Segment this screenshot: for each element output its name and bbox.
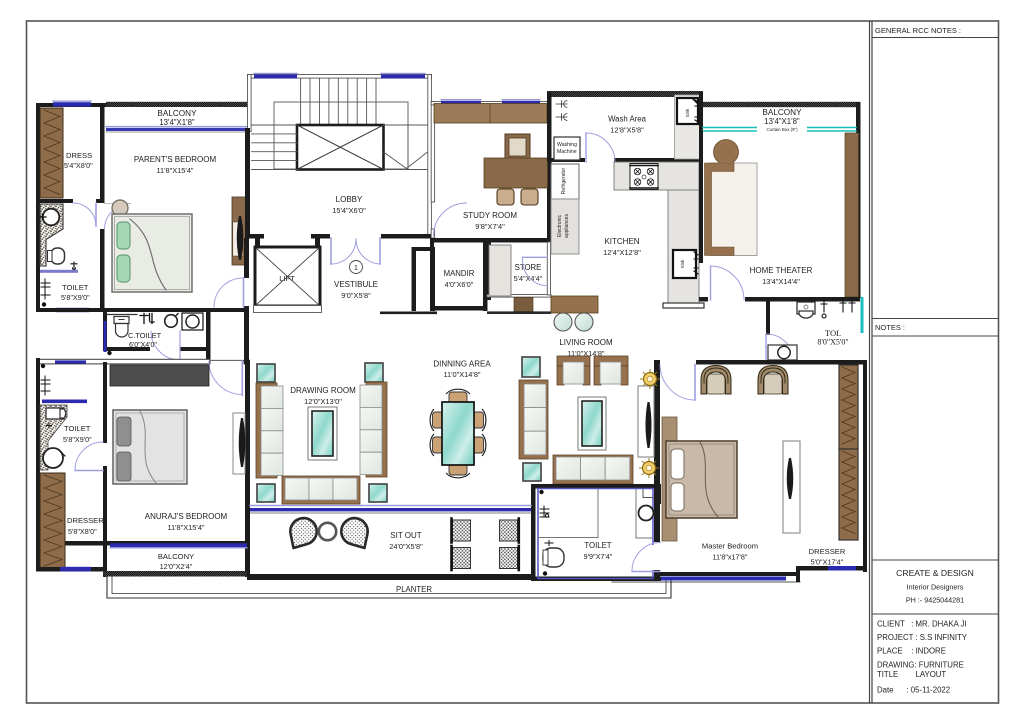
svg-text:VESTIBULE: VESTIBULE xyxy=(334,280,378,289)
svg-text:CREATE & DESIGN: CREATE & DESIGN xyxy=(896,568,974,578)
svg-text:HOME THEATER: HOME THEATER xyxy=(750,266,813,275)
svg-text:DRESS: DRESS xyxy=(66,151,92,160)
svg-text:TOILET: TOILET xyxy=(62,283,89,292)
svg-text:5'4"X8'0": 5'4"X8'0" xyxy=(64,161,93,170)
svg-text:Sink: Sink xyxy=(685,108,690,118)
svg-text:Machine: Machine xyxy=(557,149,577,155)
svg-text:PROJECT : S.S INFINITY: PROJECT : S.S INFINITY xyxy=(877,633,968,642)
svg-text:STORE: STORE xyxy=(515,263,542,272)
svg-text:Washing: Washing xyxy=(557,142,577,148)
svg-text:Electronic: Electronic xyxy=(557,215,563,237)
svg-text:11'8"X15'4": 11'8"X15'4" xyxy=(167,523,204,532)
svg-text:TITLE LAYOUT: TITLE LAYOUT xyxy=(877,670,946,679)
svg-text:15'4"X6'0": 15'4"X6'0" xyxy=(332,206,366,215)
svg-text:Wash Area: Wash Area xyxy=(608,115,647,124)
svg-text:11'0"X14'8": 11'0"X14'8" xyxy=(443,370,480,379)
svg-text:5'8"X9'0": 5'8"X9'0" xyxy=(63,435,92,444)
svg-text:LIFT: LIFT xyxy=(279,274,295,283)
svg-text:LIVING ROOM: LIVING ROOM xyxy=(559,338,613,347)
svg-text:BALCONY: BALCONY xyxy=(157,109,197,118)
svg-text:PLANTER: PLANTER xyxy=(396,585,432,594)
svg-text:ANURAJ'S BEDROOM: ANURAJ'S BEDROOM xyxy=(145,512,228,521)
svg-text:GENERAL RCC NOTES :: GENERAL RCC NOTES : xyxy=(875,26,961,35)
svg-text:CLIENT : MR. DHAKA JI: CLIENT : MR. DHAKA JI xyxy=(877,620,967,629)
svg-text:13'4"X14'4": 13'4"X14'4" xyxy=(762,277,800,286)
svg-text:1: 1 xyxy=(354,265,358,272)
svg-text:TOI.: TOI. xyxy=(825,328,841,338)
svg-text:9'8"X7'4": 9'8"X7'4" xyxy=(475,222,505,231)
svg-text:9'9"X7'4": 9'9"X7'4" xyxy=(584,552,613,561)
svg-text:PLACE : INDORE: PLACE : INDORE xyxy=(877,647,946,656)
svg-text:MANDIR: MANDIR xyxy=(444,269,475,278)
svg-text:Refrigerator: Refrigerator xyxy=(561,167,567,194)
svg-text:PH :- 9425044281: PH :- 9425044281 xyxy=(906,596,964,605)
svg-text:NOTES :: NOTES : xyxy=(875,323,905,332)
svg-text:BALCONY: BALCONY xyxy=(762,108,802,117)
svg-text:DRAWING ROOM: DRAWING ROOM xyxy=(290,386,356,395)
svg-text:12'8"X5'8": 12'8"X5'8" xyxy=(610,126,644,135)
svg-text:12'0"X2'4": 12'0"X2'4" xyxy=(160,562,193,571)
svg-text:Sink: Sink xyxy=(680,259,685,269)
svg-text:11'8"X15'4": 11'8"X15'4" xyxy=(156,166,193,175)
svg-text:Curtain Box (9"): Curtain Box (9") xyxy=(766,127,798,132)
svg-text:TOILET: TOILET xyxy=(584,541,611,550)
svg-text:24'0"X5'8": 24'0"X5'8" xyxy=(389,542,423,551)
svg-text:11'0"X14'8": 11'0"X14'8" xyxy=(567,349,604,358)
svg-text:C.TOILET: C.TOILET xyxy=(128,331,162,340)
svg-text:11'8"x17'8": 11'8"x17'8" xyxy=(713,553,748,562)
svg-text:Interior Designers: Interior Designers xyxy=(907,583,964,592)
svg-text:6'0"X4'0": 6'0"X4'0" xyxy=(129,342,157,349)
svg-text:DINNING AREA: DINNING AREA xyxy=(433,360,491,369)
svg-text:appliances: appliances xyxy=(564,214,570,238)
svg-text:DRAWING: FURNITURE: DRAWING: FURNITURE xyxy=(877,661,964,670)
svg-text:5'8"X8'0": 5'8"X8'0" xyxy=(68,527,97,536)
svg-text:4'0"X6'0": 4'0"X6'0" xyxy=(445,280,474,289)
svg-text:DRESSER: DRESSER xyxy=(809,547,846,556)
svg-text:STUDY ROOM: STUDY ROOM xyxy=(463,211,517,220)
svg-text:12'4"X12'8": 12'4"X12'8" xyxy=(603,248,641,257)
svg-text:13'4"X1'8": 13'4"X1'8" xyxy=(159,118,195,127)
svg-text:5'8"X9'0": 5'8"X9'0" xyxy=(61,293,90,302)
svg-text:8'0"X5'0": 8'0"X5'0" xyxy=(817,338,848,347)
svg-text:Date : 05-11-2022: Date : 05-11-2022 xyxy=(877,686,950,695)
svg-text:BALCONY: BALCONY xyxy=(158,552,194,561)
svg-text:DRESSER: DRESSER xyxy=(67,516,104,525)
svg-text:TOILET: TOILET xyxy=(64,424,91,433)
svg-text:PARENT'S BEDROOM: PARENT'S BEDROOM xyxy=(134,155,217,164)
svg-text:9'0"X5'8": 9'0"X5'8" xyxy=(341,291,371,300)
svg-text:12'0"X13'0": 12'0"X13'0" xyxy=(304,397,342,406)
svg-text:5'4"X4'4": 5'4"X4'4" xyxy=(514,274,543,283)
svg-text:KITCHEN: KITCHEN xyxy=(604,237,639,246)
svg-text:5'0"X17'4": 5'0"X17'4" xyxy=(811,558,844,567)
svg-text:Master Bedroom: Master Bedroom xyxy=(702,542,758,551)
svg-text:SIT OUT: SIT OUT xyxy=(390,531,422,540)
svg-text:LOBBY: LOBBY xyxy=(336,195,363,204)
svg-text:13'4"X1'8": 13'4"X1'8" xyxy=(764,117,800,126)
